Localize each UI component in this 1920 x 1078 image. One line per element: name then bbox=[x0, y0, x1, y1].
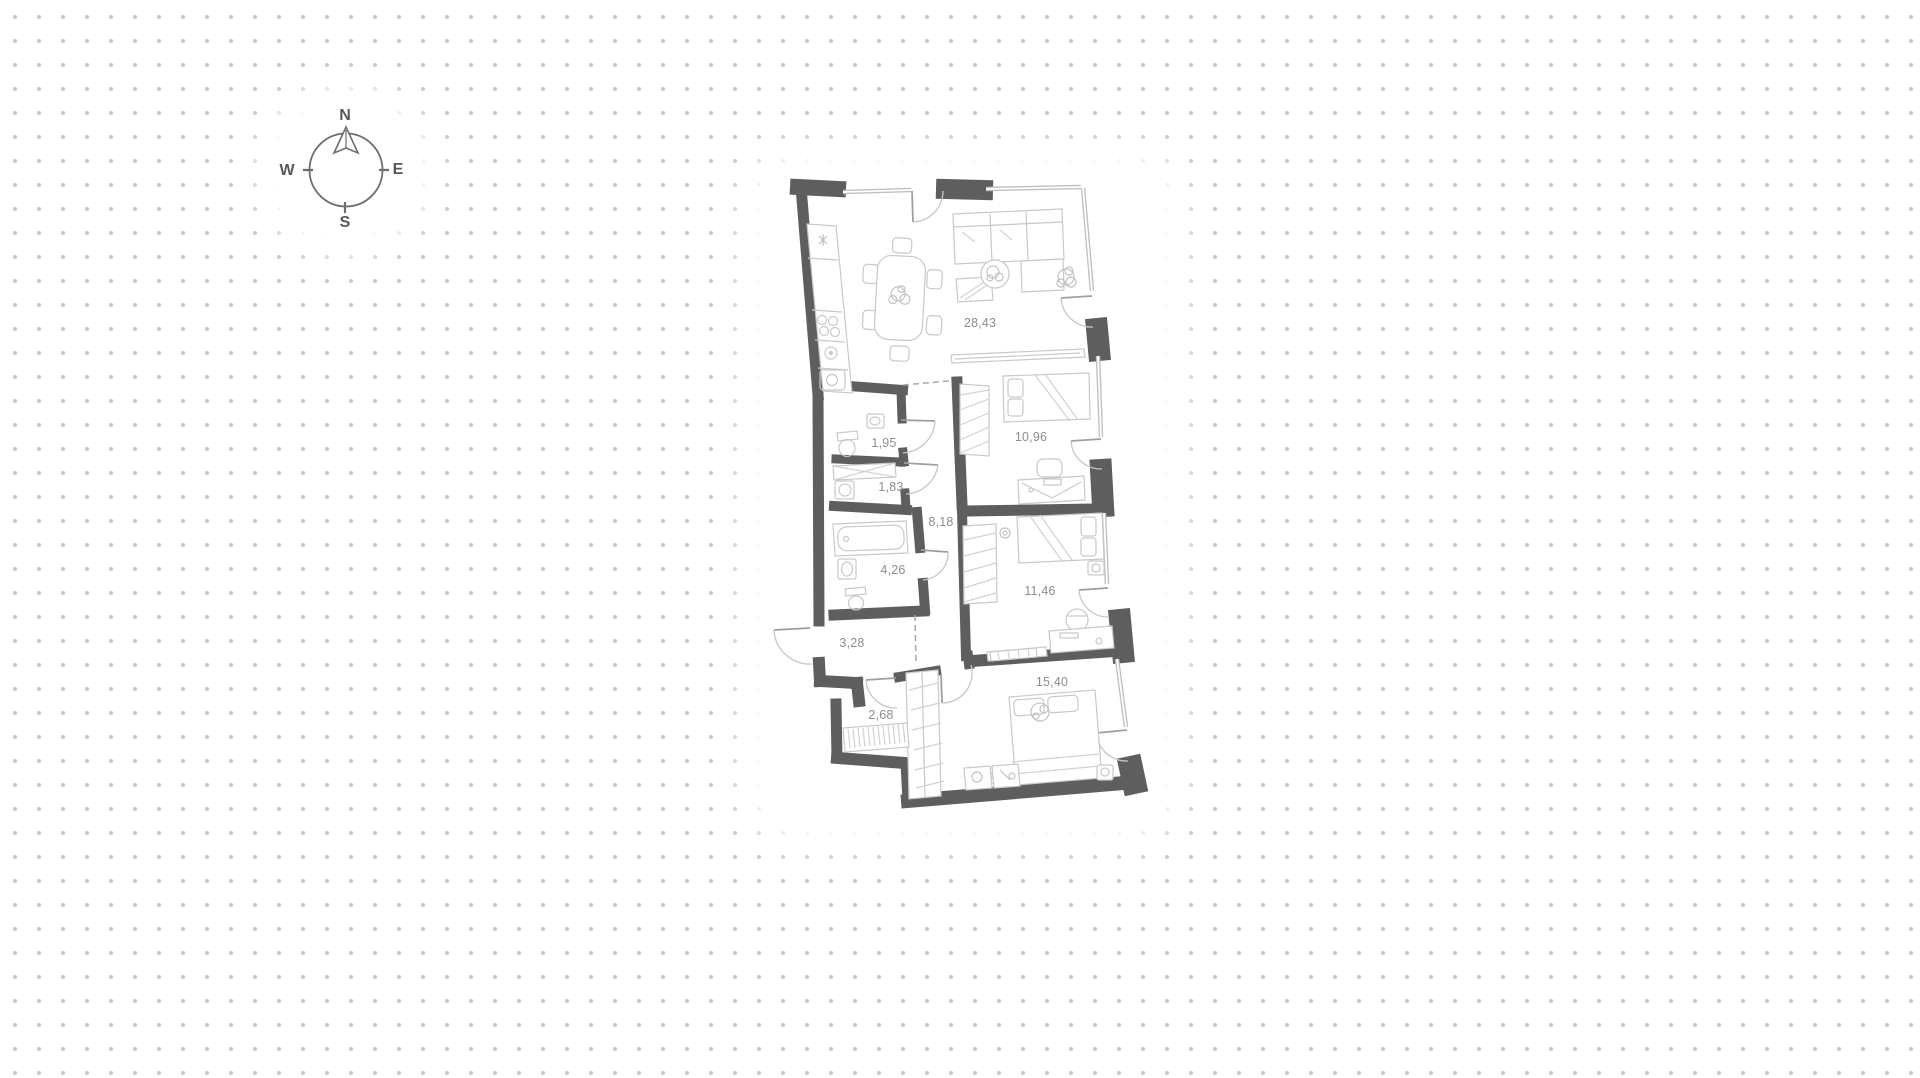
room-area-label-wc: 1,95 bbox=[871, 436, 896, 450]
wardrobe-bedroom-1 bbox=[960, 384, 989, 456]
compass-east-label: E bbox=[393, 161, 404, 179]
room-area-label-living-kitchen: 28,43 bbox=[964, 316, 996, 330]
bed-bedroom-1 bbox=[1003, 373, 1090, 422]
room-area-label-bedroom-2: 11,46 bbox=[1024, 584, 1055, 598]
desk-bedroom-1 bbox=[1018, 459, 1085, 504]
room-area-label-closet: 2,68 bbox=[868, 708, 893, 722]
compass-south-label: S bbox=[340, 214, 351, 232]
compass-north-label: N bbox=[339, 107, 351, 125]
closet-rail bbox=[843, 723, 909, 752]
room-area-label-laundry: 1,83 bbox=[878, 480, 903, 494]
dining-table bbox=[859, 236, 946, 363]
coffee-table bbox=[956, 260, 1009, 302]
bed-bedroom-2 bbox=[1000, 513, 1104, 575]
living-sideboard bbox=[951, 349, 1085, 363]
room-area-label-bedroom-1: 10,96 bbox=[1015, 430, 1047, 444]
room-area-label-bedroom-3: 15,40 bbox=[1036, 675, 1068, 689]
wardrobe-bedroom-2 bbox=[963, 524, 997, 604]
room-area-label-bathroom: 4,26 bbox=[880, 563, 905, 577]
flower-icon bbox=[1000, 528, 1010, 538]
compass-icon bbox=[303, 127, 389, 213]
room-area-label-entry-hall: 3,28 bbox=[839, 636, 864, 650]
compass-west-label: W bbox=[279, 162, 294, 180]
wardrobe-bedroom-3 bbox=[906, 670, 944, 799]
room-area-label-hallway: 8,18 bbox=[928, 515, 953, 529]
